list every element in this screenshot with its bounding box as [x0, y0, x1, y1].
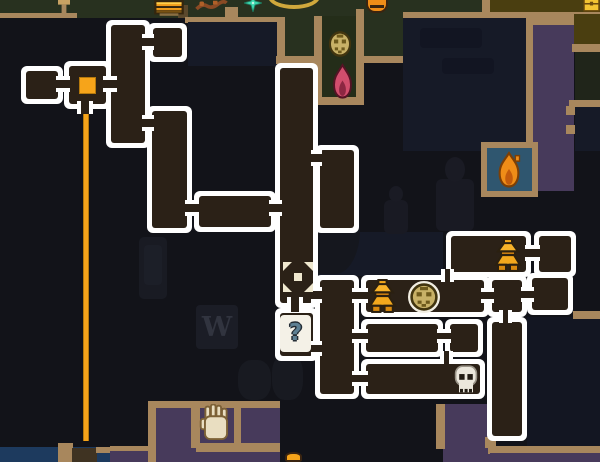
orange-flame-icon — [494, 151, 524, 189]
bell-icon — [366, 279, 399, 314]
room-l-floor — [532, 278, 568, 310]
sign-letter: W — [202, 314, 232, 341]
tan-pb-left — [148, 401, 156, 462]
ember-icon — [285, 452, 302, 462]
tan-pb-div2 — [234, 403, 241, 445]
pink-flame-icon — [329, 63, 356, 100]
pot-band — [370, 5, 384, 8]
hand-icon — [199, 404, 233, 442]
door-connector — [311, 150, 322, 166]
unexplored-right — [575, 107, 600, 151]
room-d-floor — [152, 111, 187, 228]
gold-face-icon — [408, 281, 440, 313]
barrel — [238, 360, 271, 400]
game-viewport[interactable]: W? — [0, 0, 600, 462]
branch-icon — [195, 0, 228, 12]
olive-right — [575, 52, 600, 102]
tan-stub-r1 — [566, 106, 575, 115]
door-connector — [185, 200, 199, 216]
room-n2-floor — [450, 324, 478, 352]
x-marker-corner — [283, 283, 292, 292]
door-connector — [103, 76, 117, 92]
tan-pcb-left — [436, 404, 445, 449]
room-p — [487, 317, 527, 441]
player-trail-line — [83, 107, 89, 441]
tan-alcove-bottom — [360, 56, 404, 63]
player-marker — [79, 77, 96, 94]
room-t-floor — [153, 28, 182, 57]
question-glyph: ? — [289, 322, 302, 345]
question-icon: ? — [280, 315, 311, 352]
tan-stub-r2 — [566, 125, 575, 134]
door-connector — [525, 245, 540, 261]
tan-right-1 — [572, 44, 600, 52]
door-connector — [56, 76, 70, 92]
tan-stub-f — [277, 17, 285, 58]
room-m-floor — [320, 280, 354, 394]
creature-silhouette — [432, 157, 478, 231]
olive-f — [285, 17, 315, 58]
door-connector — [77, 101, 93, 114]
room-e-floor — [199, 196, 271, 227]
gold-chest-icon — [583, 0, 600, 12]
wooden-sign: W — [196, 305, 238, 349]
creature-body — [384, 200, 408, 234]
gold-box-right — [574, 14, 600, 47]
lantern-inner — [144, 245, 162, 285]
tan-pillar-bottom — [58, 443, 73, 462]
unexplored-1 — [188, 22, 277, 66]
door-connector — [269, 200, 282, 216]
creature-body — [436, 179, 474, 231]
door-connector — [311, 341, 322, 356]
shadow-blob — [420, 28, 482, 48]
anvil-block — [72, 448, 97, 462]
recall-x-marker — [283, 262, 313, 292]
x-marker-center — [294, 273, 302, 281]
door-connector — [142, 34, 154, 50]
x-marker-corner — [304, 283, 313, 292]
purple-small — [110, 451, 148, 462]
room-n — [361, 319, 443, 357]
room-k-floor — [492, 280, 522, 312]
purple-col-bottom — [443, 404, 492, 462]
room-a-floor — [26, 71, 58, 99]
room-g-floor — [320, 150, 354, 228]
door-connector — [441, 269, 454, 282]
purple-bottom-right — [490, 453, 600, 462]
door-connector — [499, 310, 512, 323]
tan-bit — [96, 447, 110, 453]
skull-icon — [450, 363, 482, 397]
x-marker-corner — [283, 262, 292, 271]
door-connector — [481, 288, 494, 303]
room-i-floor — [539, 236, 571, 272]
shadow-blob — [442, 58, 494, 74]
tan-pb-bottom — [196, 443, 280, 452]
x-marker-corner — [304, 262, 313, 271]
sparkle-icon — [244, 0, 262, 12]
door-connector — [352, 371, 368, 386]
tan-r3 — [573, 311, 600, 319]
lantern-silhouette — [139, 237, 167, 299]
room-n-floor — [366, 324, 438, 352]
olive-alcove — [364, 17, 403, 58]
bell-icon — [492, 238, 524, 273]
door-connector — [521, 287, 534, 302]
candlestick-icon — [56, 0, 72, 16]
room-i — [534, 231, 576, 277]
room-p-floor — [492, 322, 522, 436]
door-connector — [352, 329, 368, 343]
door-connector — [287, 297, 303, 312]
creature-silhouette — [380, 186, 412, 234]
chest-icon — [154, 0, 184, 16]
unexplored-4 — [527, 317, 600, 447]
gold-face-icon — [327, 29, 353, 59]
door-connector — [142, 115, 154, 131]
door-connector — [437, 329, 451, 343]
room-e — [194, 191, 276, 232]
